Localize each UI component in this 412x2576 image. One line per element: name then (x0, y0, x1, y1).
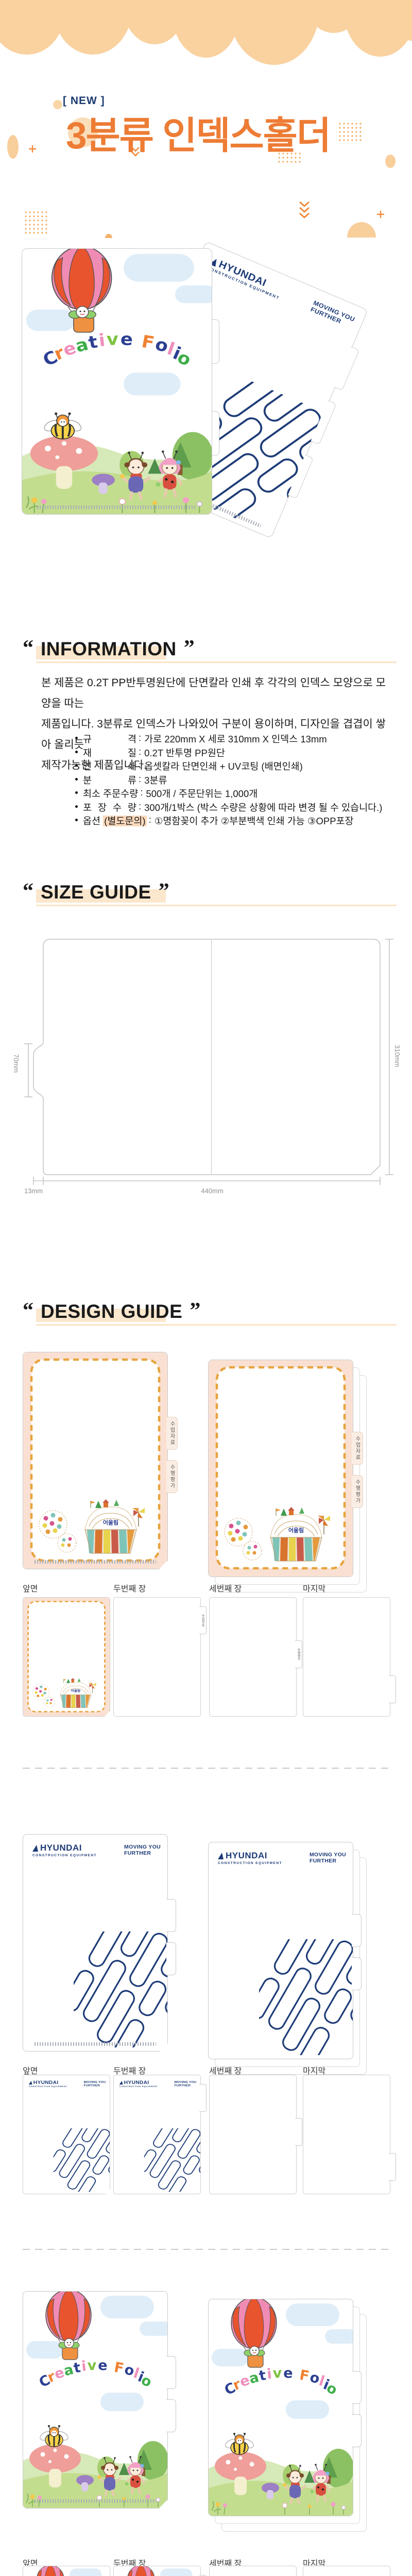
creative-folio-design: CreativeFolio (209, 2299, 353, 2516)
dim-total-width: 440mm (191, 1187, 234, 1195)
hyundai-folder-design: HYUNDAI CONSTRUCTION EQUIPMENT MOVING YO… (23, 1835, 167, 2051)
bullet-icon (75, 737, 78, 739)
design-c-third-sheet: CreativeFolio (209, 2566, 296, 2576)
deco-ellipse (7, 135, 19, 159)
design-c-second-sheet: CreativeFolio (113, 2566, 200, 2576)
index-tab (389, 2153, 396, 2181)
forest-scene-illustration (23, 2420, 167, 2508)
option-highlight: (별도문의) (103, 816, 146, 826)
cloud-shape (325, 2329, 353, 2344)
hyundai-slogan: MOVING YOU FURTHER (310, 1852, 346, 1864)
bullet-icon (75, 751, 78, 753)
creative-folio-logo: CreativeFolio (209, 2365, 353, 2419)
spec-row: 최소 주문수량:500개 / 주문단위는 1,000개 (75, 787, 382, 801)
design-a-closed-mockup: 어울림 수업자료 수행평가 (23, 1352, 167, 1568)
weld-seal-strip (35, 2499, 156, 2503)
product-detail-page: [ NEW ] 3분류 인덱스홀더 HYUNDAI CONSTRUCTION E… (0, 0, 412, 2576)
bee-character (224, 2433, 255, 2454)
design-c-front-sheet: CreativeFolio (23, 2566, 109, 2576)
bullet-icon (75, 791, 78, 794)
section-divider (23, 1768, 389, 1769)
design-b-last-sheet (303, 2075, 389, 2193)
svg-text:어울림: 어울림 (103, 1519, 118, 1526)
creative-folio-design: CreativeFolio (22, 249, 212, 514)
hyundai-slogan: MOVING YOU FURTHER (175, 2080, 197, 2087)
weld-seal-strip (35, 2042, 156, 2046)
spec-list: 규 격:가로 220mm X 세로 310mm X 인덱스 13mm 재 질:0… (75, 732, 382, 828)
bee-character (39, 2425, 70, 2447)
spec-row: 규 격:가로 220mm X 세로 310mm X 인덱스 13mm (75, 732, 382, 746)
index-tab (295, 2118, 302, 2146)
hyundai-h-pattern (74, 1931, 167, 2047)
design-b-stacked-mockup: HYUNDAI CONSTRUCTION EQUIPMENT MOVING YO… (208, 1842, 352, 2058)
hero-folder-creative: CreativeFolio (22, 248, 211, 514)
hyundai-h-pattern (144, 2128, 200, 2192)
bullet-icon (75, 819, 78, 821)
forest-scene-illustration (209, 2428, 353, 2516)
creative-folio-design: CreativeFolio (23, 2292, 167, 2508)
dim-height: 310mm (393, 1045, 401, 1067)
cloud-shape (124, 254, 194, 282)
hot-air-balloon-illustration (43, 2292, 97, 2360)
open-quote-icon: “ (23, 1300, 33, 1321)
svg-text:어울림: 어울림 (71, 1688, 80, 1693)
heading-underline (36, 1324, 397, 1326)
cloud-shape (140, 2321, 167, 2336)
hyundai-folder-design: HYUNDAI CONSTRUCTION EQUIPMENT MOVING YO… (209, 1842, 353, 2059)
design-a-stacked-mockup: 어울림 수업자료 수행평가 (208, 1360, 352, 1576)
hyundai-h-pattern (54, 2128, 110, 2192)
index-tab (166, 1899, 176, 1932)
deco-circle (53, 100, 62, 109)
hyundai-logo: HYUNDAI CONSTRUCTION EQUIPMENT (32, 1843, 97, 1857)
deco-dot-grid (338, 122, 362, 142)
design-a-third-sheet: 수행평가 (209, 1597, 296, 1716)
cloud-shape (100, 2296, 154, 2318)
hyundai-triangle-icon (32, 1845, 38, 1852)
design-b-front-sheet: HYUNDAI CONSTRUCTION EQUIPMENT MOVING YO… (23, 2075, 109, 2193)
dim-tab-width: 13mm (22, 1187, 45, 1195)
design-a-last-sheet (303, 1597, 389, 1716)
forest-scene-illustration (22, 407, 212, 514)
hot-air-balloon-illustration (35, 2566, 67, 2576)
index-tab (389, 1675, 396, 1703)
village-cupcake-illustration: 어울림 (38, 1493, 153, 1560)
index-tab: 수행평가 (352, 1475, 363, 1508)
index-tab (166, 1942, 176, 1975)
page-label: 세번째 장 (209, 1582, 242, 1594)
spec-row: 분 류:3분류 (75, 773, 382, 787)
plus-icon (28, 145, 37, 153)
page-label: 앞면 (23, 1582, 38, 1594)
half-circle-icon (105, 233, 112, 238)
creative-folio-design: CreativeFolio (114, 2566, 200, 2576)
hot-air-balloon-illustration (228, 2299, 282, 2368)
bullet-icon (75, 778, 78, 781)
spec-row: 인 쇄:옵셋칼라 단면인쇄 + UV코팅 (배면인쇄) (75, 759, 382, 773)
index-tab: 수행평가 (166, 1460, 178, 1493)
cloud-shape (160, 2568, 192, 2576)
index-tab (166, 2356, 176, 2389)
hyundai-folder-design: HYUNDAI CONSTRUCTION EQUIPMENT MOVING YO… (114, 2075, 200, 2194)
spec-row: 옵션 (별도문의):①명함꽂이 추가 ②부분백색 인쇄 가능 ③OPP포장 (75, 814, 382, 828)
hyundai-triangle-icon (119, 2081, 123, 2084)
bullet-icon (75, 805, 78, 808)
cloud-shape (70, 2568, 101, 2576)
hyundai-triangle-icon (29, 2081, 32, 2084)
close-quote-icon: ” (159, 881, 169, 902)
index-tab: 수업자료 (199, 1606, 207, 1634)
index-tab: 수행평가 (295, 1640, 302, 1668)
creative-folio-logo: CreativeFolio (22, 330, 212, 396)
creative-folio-design: CreativeFolio (210, 2566, 296, 2576)
creative-folio-design: CreativeFolio (23, 2566, 110, 2576)
eoullim-folder-design: 어울림 (23, 1352, 167, 1569)
page-title: 3분류 인덱스홀더 (66, 105, 330, 160)
index-tab (352, 1957, 362, 1990)
design-c-stacked-mockup: CreativeFolio (208, 2299, 352, 2515)
index-tab (352, 2414, 362, 2447)
eoullim-folder-design: 어울림 (23, 1598, 110, 1716)
size-diagram (0, 927, 412, 1206)
index-tab (199, 2084, 207, 2112)
weld-seal-strip (35, 1560, 156, 1564)
section-divider (23, 2249, 389, 2250)
cloud-shape (175, 285, 212, 303)
section-information-heading: “ INFORMATION ” (23, 638, 397, 665)
village-cupcake-illustration: 어울림 (32, 1674, 101, 1711)
hyundai-h-pattern (259, 1939, 353, 2055)
design-b-second-sheet: HYUNDAI CONSTRUCTION EQUIPMENT MOVING YO… (113, 2075, 200, 2193)
design-a-front-sheet: 어울림 (23, 1597, 109, 1716)
design-c-closed-mockup: CreativeFolio (23, 2291, 167, 2507)
design-a-second-sheet: 수업자료 (113, 1597, 200, 1716)
cloud-shape (286, 2303, 339, 2326)
page-label: 두번째 장 (113, 1582, 146, 1594)
index-tab (352, 2371, 362, 2404)
weld-seal-strip (37, 505, 196, 509)
hyundai-logo: HYUNDAI CONSTRUCTION EQUIPMENT (218, 1851, 282, 1865)
hyundai-logo: HYUNDAI CONSTRUCTION EQUIPMENT (29, 2080, 67, 2088)
design-b-closed-mockup: HYUNDAI CONSTRUCTION EQUIPMENT MOVING YO… (23, 1834, 167, 2050)
svg-text:어울림: 어울림 (288, 1527, 304, 1534)
hyundai-triangle-icon (218, 1853, 224, 1859)
eoullim-folder-design: 어울림 (209, 1360, 353, 1577)
hyundai-slogan: MOVING YOU FURTHER (310, 299, 356, 330)
scallop-header-decoration (0, 0, 412, 72)
open-quote-icon: “ (23, 638, 33, 658)
hot-air-balloon-illustration (48, 249, 119, 333)
half-circle-icon (347, 221, 376, 238)
heading-underline (36, 905, 397, 906)
section-design-guide-heading: “ DESIGN GUIDE ” (23, 1300, 397, 1327)
deco-ellipse (385, 155, 396, 168)
design-b-third-sheet (209, 2075, 296, 2193)
spec-row: 포 장 수 량:300개/1박스 (박스 수량은 상황에 따라 변경 될 수 있… (75, 801, 382, 815)
hyundai-slogan: MOVING YOU FURTHER (124, 1844, 161, 1856)
plus-icon (376, 210, 385, 218)
hot-air-balloon-illustration (126, 2566, 158, 2576)
village-cupcake-illustration: 어울림 (223, 1500, 338, 1567)
index-tab: 수업자료 (352, 1432, 363, 1465)
section-size-guide-heading: “ SIZE GUIDE ” (23, 881, 397, 908)
hyundai-logo: HYUNDAI CONSTRUCTION EQUIPMENT (207, 255, 285, 301)
close-quote-icon: ” (184, 638, 195, 658)
dim-tab-height: 70mm (12, 1054, 20, 1073)
creative-folio-logo: CreativeFolio (23, 2358, 167, 2412)
open-quote-icon: “ (23, 881, 33, 902)
chevron-down-icon (299, 201, 310, 219)
hyundai-slogan: MOVING YOU FURTHER (84, 2080, 106, 2087)
index-tab: 수업자료 (166, 1417, 178, 1450)
heading-underline (36, 662, 397, 663)
index-tab (352, 1914, 362, 1947)
page-label: 마지막 (303, 1582, 325, 1594)
bullet-icon (75, 764, 78, 767)
close-quote-icon: ” (190, 1300, 200, 1321)
design-c-last-sheet (303, 2566, 389, 2576)
bee-character (43, 413, 83, 439)
hyundai-logo: HYUNDAI CONSTRUCTION EQUIPMENT (119, 2080, 158, 2088)
deco-dot-grid (24, 210, 47, 235)
hyundai-folder-design: HYUNDAI CONSTRUCTION EQUIPMENT MOVING YO… (23, 2075, 110, 2194)
spec-row: 재 질:0.2T 반투명 PP원단 (75, 746, 382, 760)
index-tab (166, 2399, 176, 2432)
